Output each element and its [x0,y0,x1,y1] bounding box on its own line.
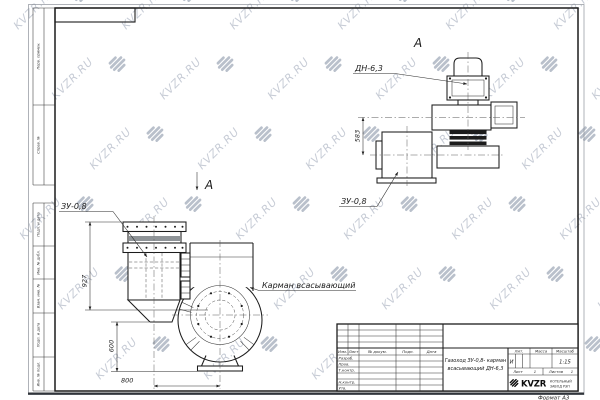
watermark-text: KVZR.RU [195,125,242,172]
watermark-logo-icon [501,0,523,5]
view-a-title: А [413,36,422,50]
sheet-label: Лист [512,369,523,374]
watermark-logo-icon [539,53,561,75]
view-a: А 583 ДН-6,3 [339,36,525,207]
watermark-logo-icon [259,333,281,355]
watermark-text: KVZR.RU [233,195,280,242]
watermark-logo-icon [69,0,91,5]
format-label: Формат А3 [538,396,570,400]
watermark-logo-icon [393,0,415,5]
watermark-text: KVZR.RU [449,195,496,242]
watermark-logo-icon [145,123,167,145]
watermark-logo-icon [107,53,129,75]
masshtab-label: Масштаб [556,349,575,354]
margin-label-perv-primen: Перв. примен. [37,43,41,70]
sheets-label: Листов [548,369,564,374]
watermark-text: KVZR.RU [373,55,420,102]
scale-value: 1:15 [559,360,571,366]
lit-value: И [510,360,514,366]
title-block: Изм. Лист № докум. Подп. Дата Разраб. Пр… [337,324,578,391]
dim-927-text: 927 [81,274,89,287]
watermark-logo-icon [177,0,199,5]
company-name-line1: КОТЕЛЬНЫЙ [550,379,572,384]
watermark-text: KVZR.RU [303,125,350,172]
watermark-text: KVZR.RU [379,265,426,312]
watermark-logo-icon [285,0,307,5]
watermark-logo-icon [431,53,453,75]
watermark-text: KVZR.RU [201,335,248,382]
margin-label-inv-dubl: Инв. № дубл. [37,250,41,275]
company-name-line2: ЗАВОД РЭП [550,385,570,389]
dim-583-text: 583 [354,130,362,142]
margin-label-podp-data-1: Подп. и дата [37,212,41,236]
col-data: Дата [426,349,438,354]
col-podp: Подп. [402,349,414,354]
watermark-text: KVZR.RU [595,265,600,312]
dim-800-text: 800 [121,377,133,385]
role-prov: Пров. [339,362,350,367]
watermark-text: KVZR.RU [487,265,534,312]
role-razrab: Разраб. [339,356,354,361]
lit-label: Лит. [514,349,524,354]
svg-text:ЗУ-0,8: ЗУ-0,8 [61,202,87,211]
margin-label-sprav: Справ. № [37,136,41,154]
massa-label: Масса [535,349,548,354]
svg-text:Карман всасывающий: Карман всасывающий [262,281,355,290]
label-pocket: Карман всасывающий [250,281,356,291]
watermark-logo-icon [545,263,567,285]
watermark-logo-icon [183,193,205,215]
doc-name-line1: Газоход ЗУ-0,8- карман [445,358,507,364]
watermark-logo-icon [583,333,600,355]
col-list: Лист [348,349,359,354]
watermark-text: KVZR.RU [93,335,140,382]
svg-text:ДН-6,3: ДН-6,3 [354,64,383,73]
watermark-logo-icon [507,193,529,215]
watermark-text: KVZR.RU [519,125,566,172]
drawing-canvas: KVZR.RUKVZR.RUKVZR.RUKVZR.RUKVZR.RUKVZR.… [0,0,600,400]
company-logo-text: KVZR [521,380,547,390]
role-tkontr: Т.контр. [339,368,355,373]
dim-600-text: 600 [108,340,116,352]
doc-name-line2: всасывающий ДН-6,3 [448,366,504,372]
role-nkontr: Н.контр. [339,380,356,385]
role-utv: Утв. [339,386,347,391]
col-doc: № докум. [367,349,387,354]
watermark-text: KVZR.RU [49,55,96,102]
watermark-text: KVZR.RU [157,55,204,102]
watermark-text: KVZR.RU [87,125,134,172]
dim-583: 583 [354,118,364,156]
watermark-logo-icon [323,53,345,75]
watermark-text: KVZR.RU [55,265,102,312]
watermark-text: KVZR.RU [589,55,600,102]
view-arrow-label: А [204,178,213,192]
sheet-value: 1 [534,369,536,374]
margin-label-podp-data-2: Подп. и дата [37,323,41,347]
view-direction-arrow: А [197,172,213,192]
front-view: 927 600 800 ЗУ-0,8 Карман всасывающий А [59,172,356,389]
watermark-logo-icon [253,123,275,145]
sheets-value: 1 [571,369,573,374]
watermark-logo-icon [215,53,237,75]
drawing-sheet: KVZR.RUKVZR.RUKVZR.RUKVZR.RUKVZR.RUKVZR.… [0,0,600,400]
watermark-logo-icon [577,123,599,145]
col-izm: Изм. [338,349,347,354]
svg-text:ЗУ-0,8: ЗУ-0,8 [341,197,367,206]
margin-label-vzam-inv: Взам. инв. № [37,284,41,309]
margin-label-inv-podl: Инв. № подл. [37,362,41,387]
watermark-logo-icon [399,193,421,215]
watermark-text: KVZR.RU [265,55,312,102]
watermark-logo-icon [437,263,459,285]
watermark-logo-icon [291,193,313,215]
